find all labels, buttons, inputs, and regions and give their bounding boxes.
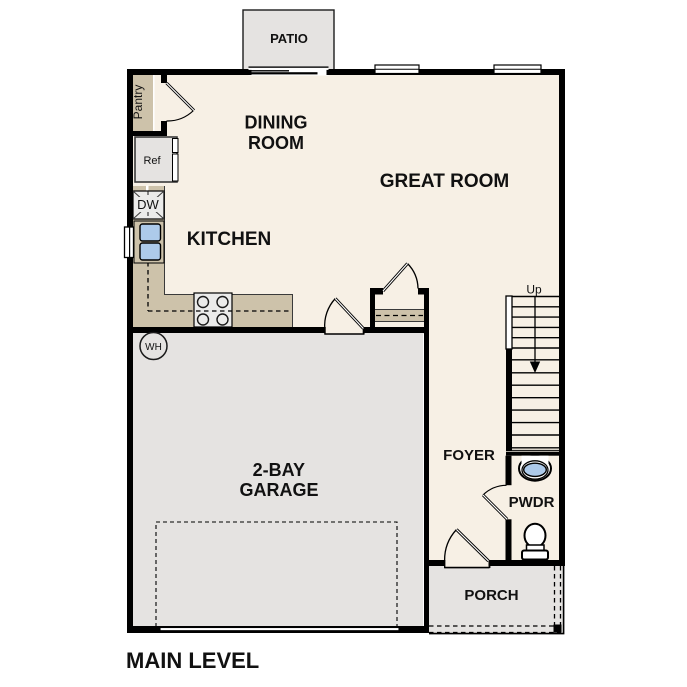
svg-text:Ref: Ref <box>143 155 161 167</box>
svg-text:ROOM: ROOM <box>248 133 304 153</box>
svg-text:WH: WH <box>145 342 162 353</box>
svg-text:DW: DW <box>137 197 159 212</box>
svg-text:FOYER: FOYER <box>443 447 495 464</box>
svg-text:KITCHEN: KITCHEN <box>187 229 271 250</box>
svg-text:2-BAY: 2-BAY <box>253 460 305 480</box>
svg-text:Pantry: Pantry <box>131 85 145 120</box>
svg-text:Up: Up <box>526 283 542 297</box>
svg-text:DINING: DINING <box>245 113 308 133</box>
svg-text:MAIN LEVEL: MAIN LEVEL <box>126 648 259 673</box>
svg-text:PATIO: PATIO <box>270 31 308 46</box>
svg-text:GARAGE: GARAGE <box>239 480 318 500</box>
svg-text:GREAT ROOM: GREAT ROOM <box>380 171 509 192</box>
svg-text:PWDR: PWDR <box>509 494 555 511</box>
svg-text:PORCH: PORCH <box>464 587 518 604</box>
